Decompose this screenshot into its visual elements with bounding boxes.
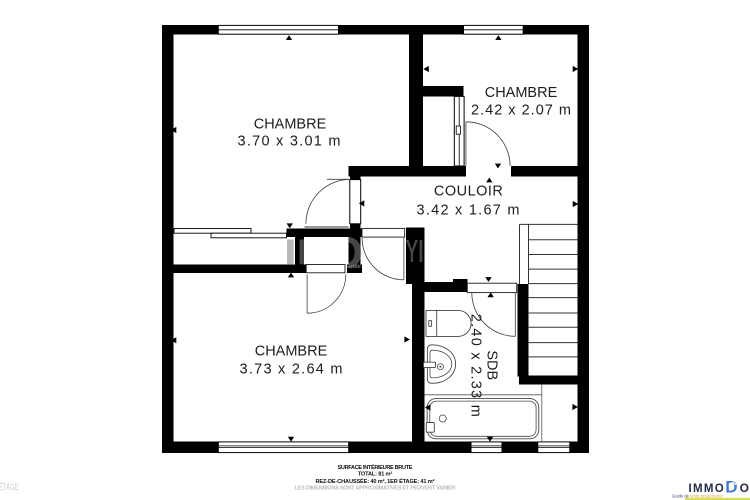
svg-text:3.42 x 1.67 m: 3.42 x 1.67 m xyxy=(417,203,520,219)
svg-text:SDB: SDB xyxy=(484,350,500,380)
svg-text:CHAMBRE: CHAMBRE xyxy=(255,343,328,359)
svg-text:3.73 x 2.64 m: 3.73 x 2.64 m xyxy=(240,361,343,377)
svg-text:CHAMBRE: CHAMBRE xyxy=(254,116,327,132)
svg-text:2.42 x 2.07 m: 2.42 x 2.07 m xyxy=(471,102,571,118)
svg-text:REZ-DE-CHAUSSÉE: 40 m², 1ER ÉT: REZ-DE-CHAUSSÉE: 40 m², 1ER ÉTAGE: 41 m² xyxy=(316,477,435,485)
svg-text:Guide de votre projet immo: Guide de votre projet immo xyxy=(672,493,723,498)
svg-text:ÉTAGE: ÉTAGE xyxy=(0,482,19,492)
svg-text:SURFACE INTÉRIEURE BRUTE: SURFACE INTÉRIEURE BRUTE xyxy=(338,463,413,471)
svg-text:LES DIMENSIONS SONT APPROXIMAT: LES DIMENSIONS SONT APPROXIMATIVES ET PE… xyxy=(295,486,456,492)
svg-text:3.70 x 3.01 m: 3.70 x 3.01 m xyxy=(238,134,341,150)
svg-text:COULOIR: COULOIR xyxy=(434,184,503,200)
svg-text:TOTAL: 81 m²: TOTAL: 81 m² xyxy=(358,471,393,478)
svg-text:O: O xyxy=(740,481,749,495)
svg-text:CHAMBRE: CHAMBRE xyxy=(485,85,558,101)
svg-text:D: D xyxy=(725,477,737,496)
svg-text:2.40 x 2.33 m: 2.40 x 2.33 m xyxy=(468,314,484,417)
